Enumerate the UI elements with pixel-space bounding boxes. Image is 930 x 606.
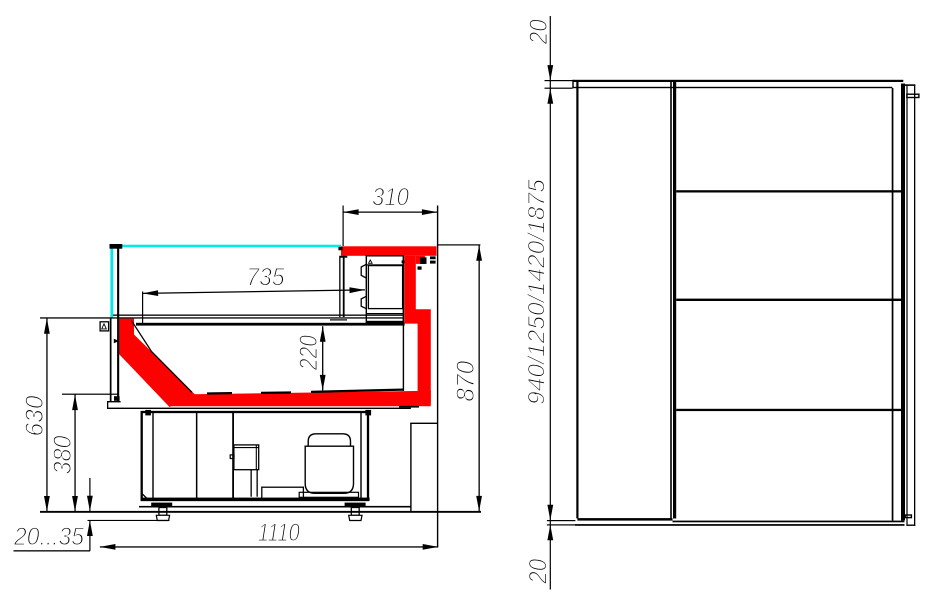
svg-text:940/1250/1420/1875: 940/1250/1420/1875 bbox=[523, 179, 550, 405]
svg-text:20...35: 20...35 bbox=[13, 523, 84, 551]
svg-text:870: 870 bbox=[452, 361, 480, 402]
svg-text:20: 20 bbox=[525, 559, 553, 585]
svg-text:20: 20 bbox=[525, 19, 553, 45]
svg-text:310: 310 bbox=[372, 184, 409, 212]
svg-text:380: 380 bbox=[49, 435, 77, 474]
svg-text:220: 220 bbox=[295, 335, 323, 371]
svg-text:630: 630 bbox=[21, 395, 49, 436]
svg-text:1110: 1110 bbox=[258, 519, 300, 547]
svg-text:735: 735 bbox=[247, 263, 285, 291]
